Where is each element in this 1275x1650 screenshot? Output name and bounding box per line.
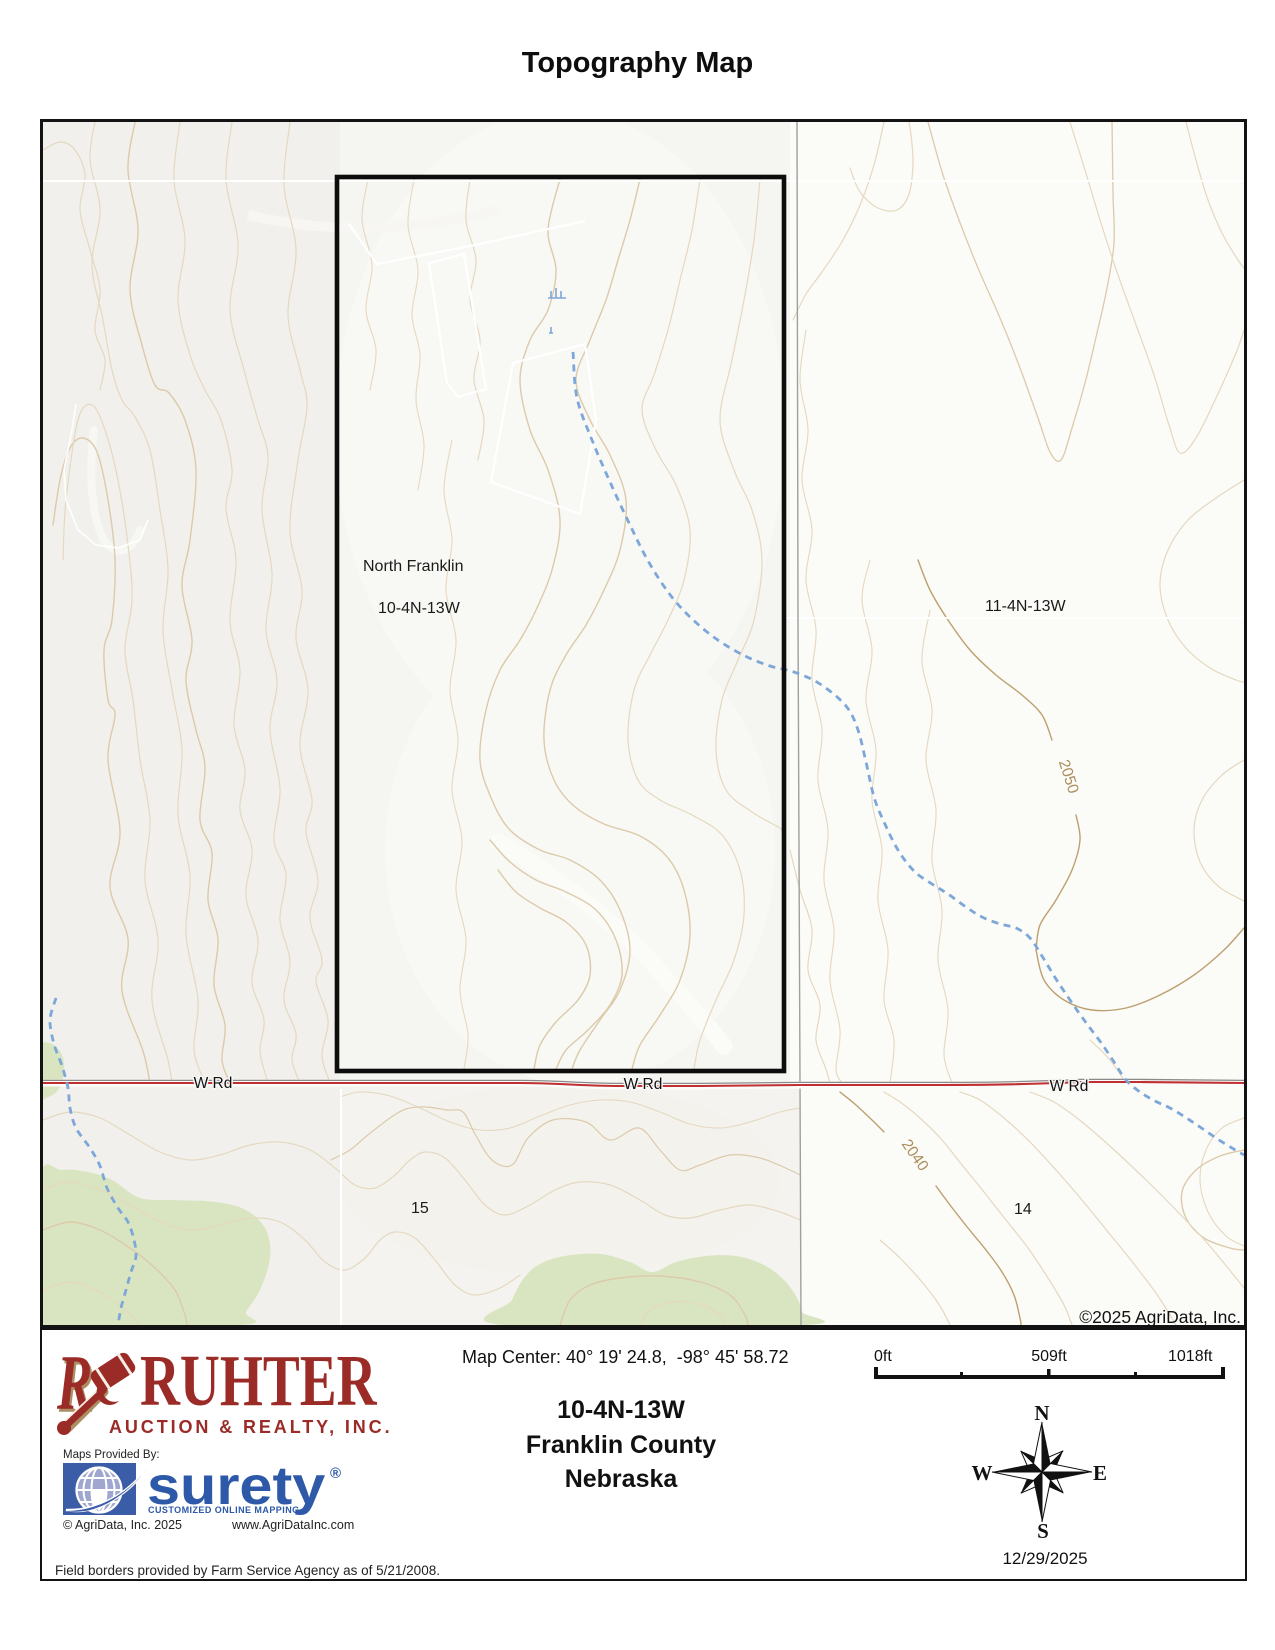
svg-text:15: 15 (411, 1200, 429, 1217)
svg-text:W Rd: W Rd (624, 1076, 663, 1093)
svg-text:S: S (1037, 1519, 1049, 1543)
svg-text:©2025 AgriData, Inc.: ©2025 AgriData, Inc. (1079, 1307, 1241, 1325)
svg-text:North Franklin: North Franklin (363, 558, 463, 575)
svg-text:W: W (972, 1461, 993, 1485)
svg-text:10-4N-13W: 10-4N-13W (378, 600, 461, 617)
svg-text:W Rd: W Rd (194, 1075, 233, 1092)
svg-text:14: 14 (1014, 1201, 1032, 1218)
svg-text:11-4N-13W: 11-4N-13W (985, 598, 1067, 615)
svg-text:E: E (1093, 1461, 1107, 1485)
svg-text:N: N (1034, 1401, 1049, 1425)
svg-text:W Rd: W Rd (1050, 1078, 1089, 1095)
